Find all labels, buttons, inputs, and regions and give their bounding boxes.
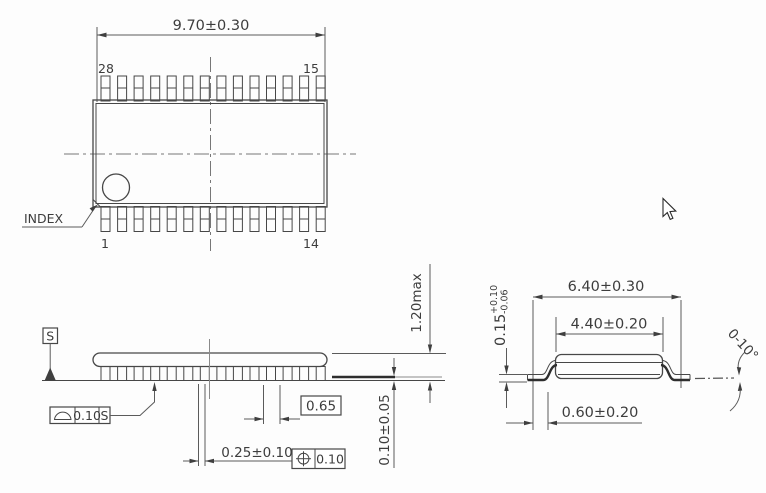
pin-number-14: 14 xyxy=(303,236,319,251)
position-tolerance-frame: 0.10 xyxy=(292,449,345,469)
index-mark-circle xyxy=(103,174,130,201)
dim-label-height: 1.20max xyxy=(409,273,425,332)
drawing-svg: 9.70±0.30 28 15 1 14 INDEX xyxy=(0,0,766,493)
dimension-lead-angle: 0-10° xyxy=(724,326,761,411)
dimension-foot-length: 0.60±0.20 xyxy=(506,392,642,430)
dim-label-lead-thickness: 0.15 xyxy=(493,314,509,346)
position-tolerance-value: 0.10 xyxy=(316,452,344,467)
side-pin-row xyxy=(101,367,325,381)
coplanarity-frame: 0.10 S xyxy=(50,382,157,424)
dimension-lead-thickness: 0.15 +0.10 -0.06 xyxy=(489,285,527,408)
package-outline-drawing: 9.70±0.30 28 15 1 14 INDEX xyxy=(0,0,766,493)
dim-label-total-width: 6.40±0.30 xyxy=(568,279,645,295)
dimension-standoff: 0.10±0.05 xyxy=(332,358,442,468)
dimension-lead-pitch: 0.65 xyxy=(244,385,341,424)
pin-number-1: 1 xyxy=(101,236,109,251)
mouse-cursor xyxy=(663,199,676,220)
pin-number-15: 15 xyxy=(303,61,319,76)
right-lead xyxy=(661,361,690,381)
top-view: 9.70±0.30 28 15 1 14 INDEX xyxy=(22,18,356,251)
bottom-pin-row xyxy=(101,207,325,232)
dim-label-body-width: 4.40±0.20 xyxy=(571,317,648,333)
datum-s-symbol: S xyxy=(43,328,58,381)
side-view: S 0.10 S xyxy=(42,264,446,469)
index-callout: INDEX xyxy=(22,205,98,228)
dim-label-lead-thickness-minus: -0.06 xyxy=(500,289,511,314)
left-lead xyxy=(528,361,558,381)
lead-angle-reference-line xyxy=(695,378,734,379)
datum-s-letter: S xyxy=(46,329,54,344)
pin-number-28: 28 xyxy=(98,61,114,76)
dim-label-foot-length: 0.60±0.20 xyxy=(562,405,639,421)
dim-label-pitch: 0.65 xyxy=(306,399,336,415)
dim-label-standoff: 0.10±0.05 xyxy=(377,394,393,465)
index-label: INDEX xyxy=(24,211,64,226)
dim-label-lead-angle: 0-10° xyxy=(724,326,761,364)
coplanarity-tolerance: 0.10 xyxy=(73,408,101,423)
dim-label-lead-thickness-plus: +0.10 xyxy=(489,285,500,314)
dim-label-package-length: 9.70±0.30 xyxy=(173,18,250,34)
dim-label-lead-width: 0.25±0.10 xyxy=(221,445,292,461)
coplanarity-datum: S xyxy=(101,408,109,423)
end-view: 6.40±0.30 4.40±0.20 xyxy=(489,279,761,430)
dimension-package-height: 1.20max xyxy=(332,264,446,403)
dimension-body-width: 4.40±0.20 xyxy=(556,317,663,353)
top-pin-row xyxy=(101,76,325,101)
